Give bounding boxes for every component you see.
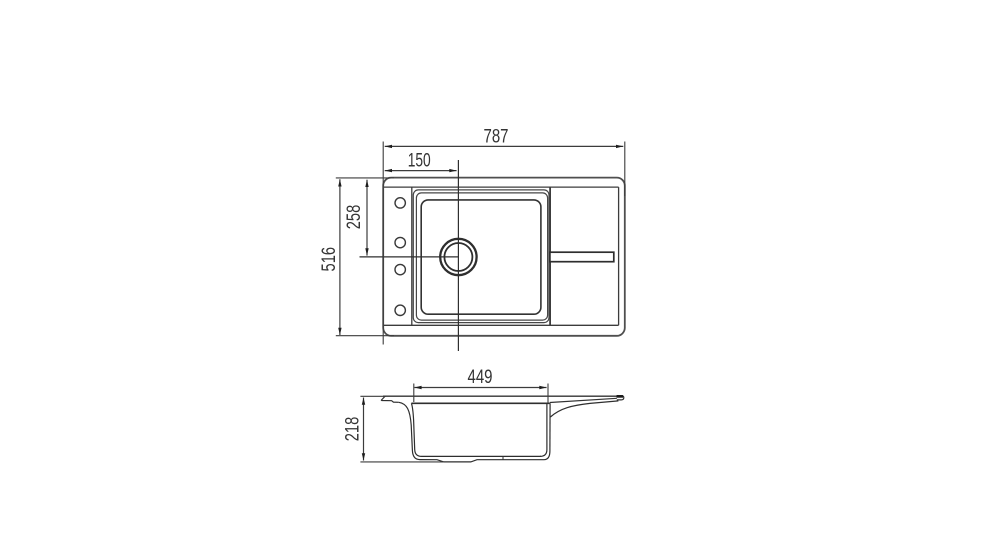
svg-text:150: 150 <box>408 150 431 172</box>
svg-text:218: 218 <box>342 417 364 442</box>
svg-text:787: 787 <box>484 126 509 148</box>
svg-text:449: 449 <box>468 366 493 388</box>
svg-text:258: 258 <box>343 205 365 230</box>
svg-text:516: 516 <box>318 247 340 272</box>
